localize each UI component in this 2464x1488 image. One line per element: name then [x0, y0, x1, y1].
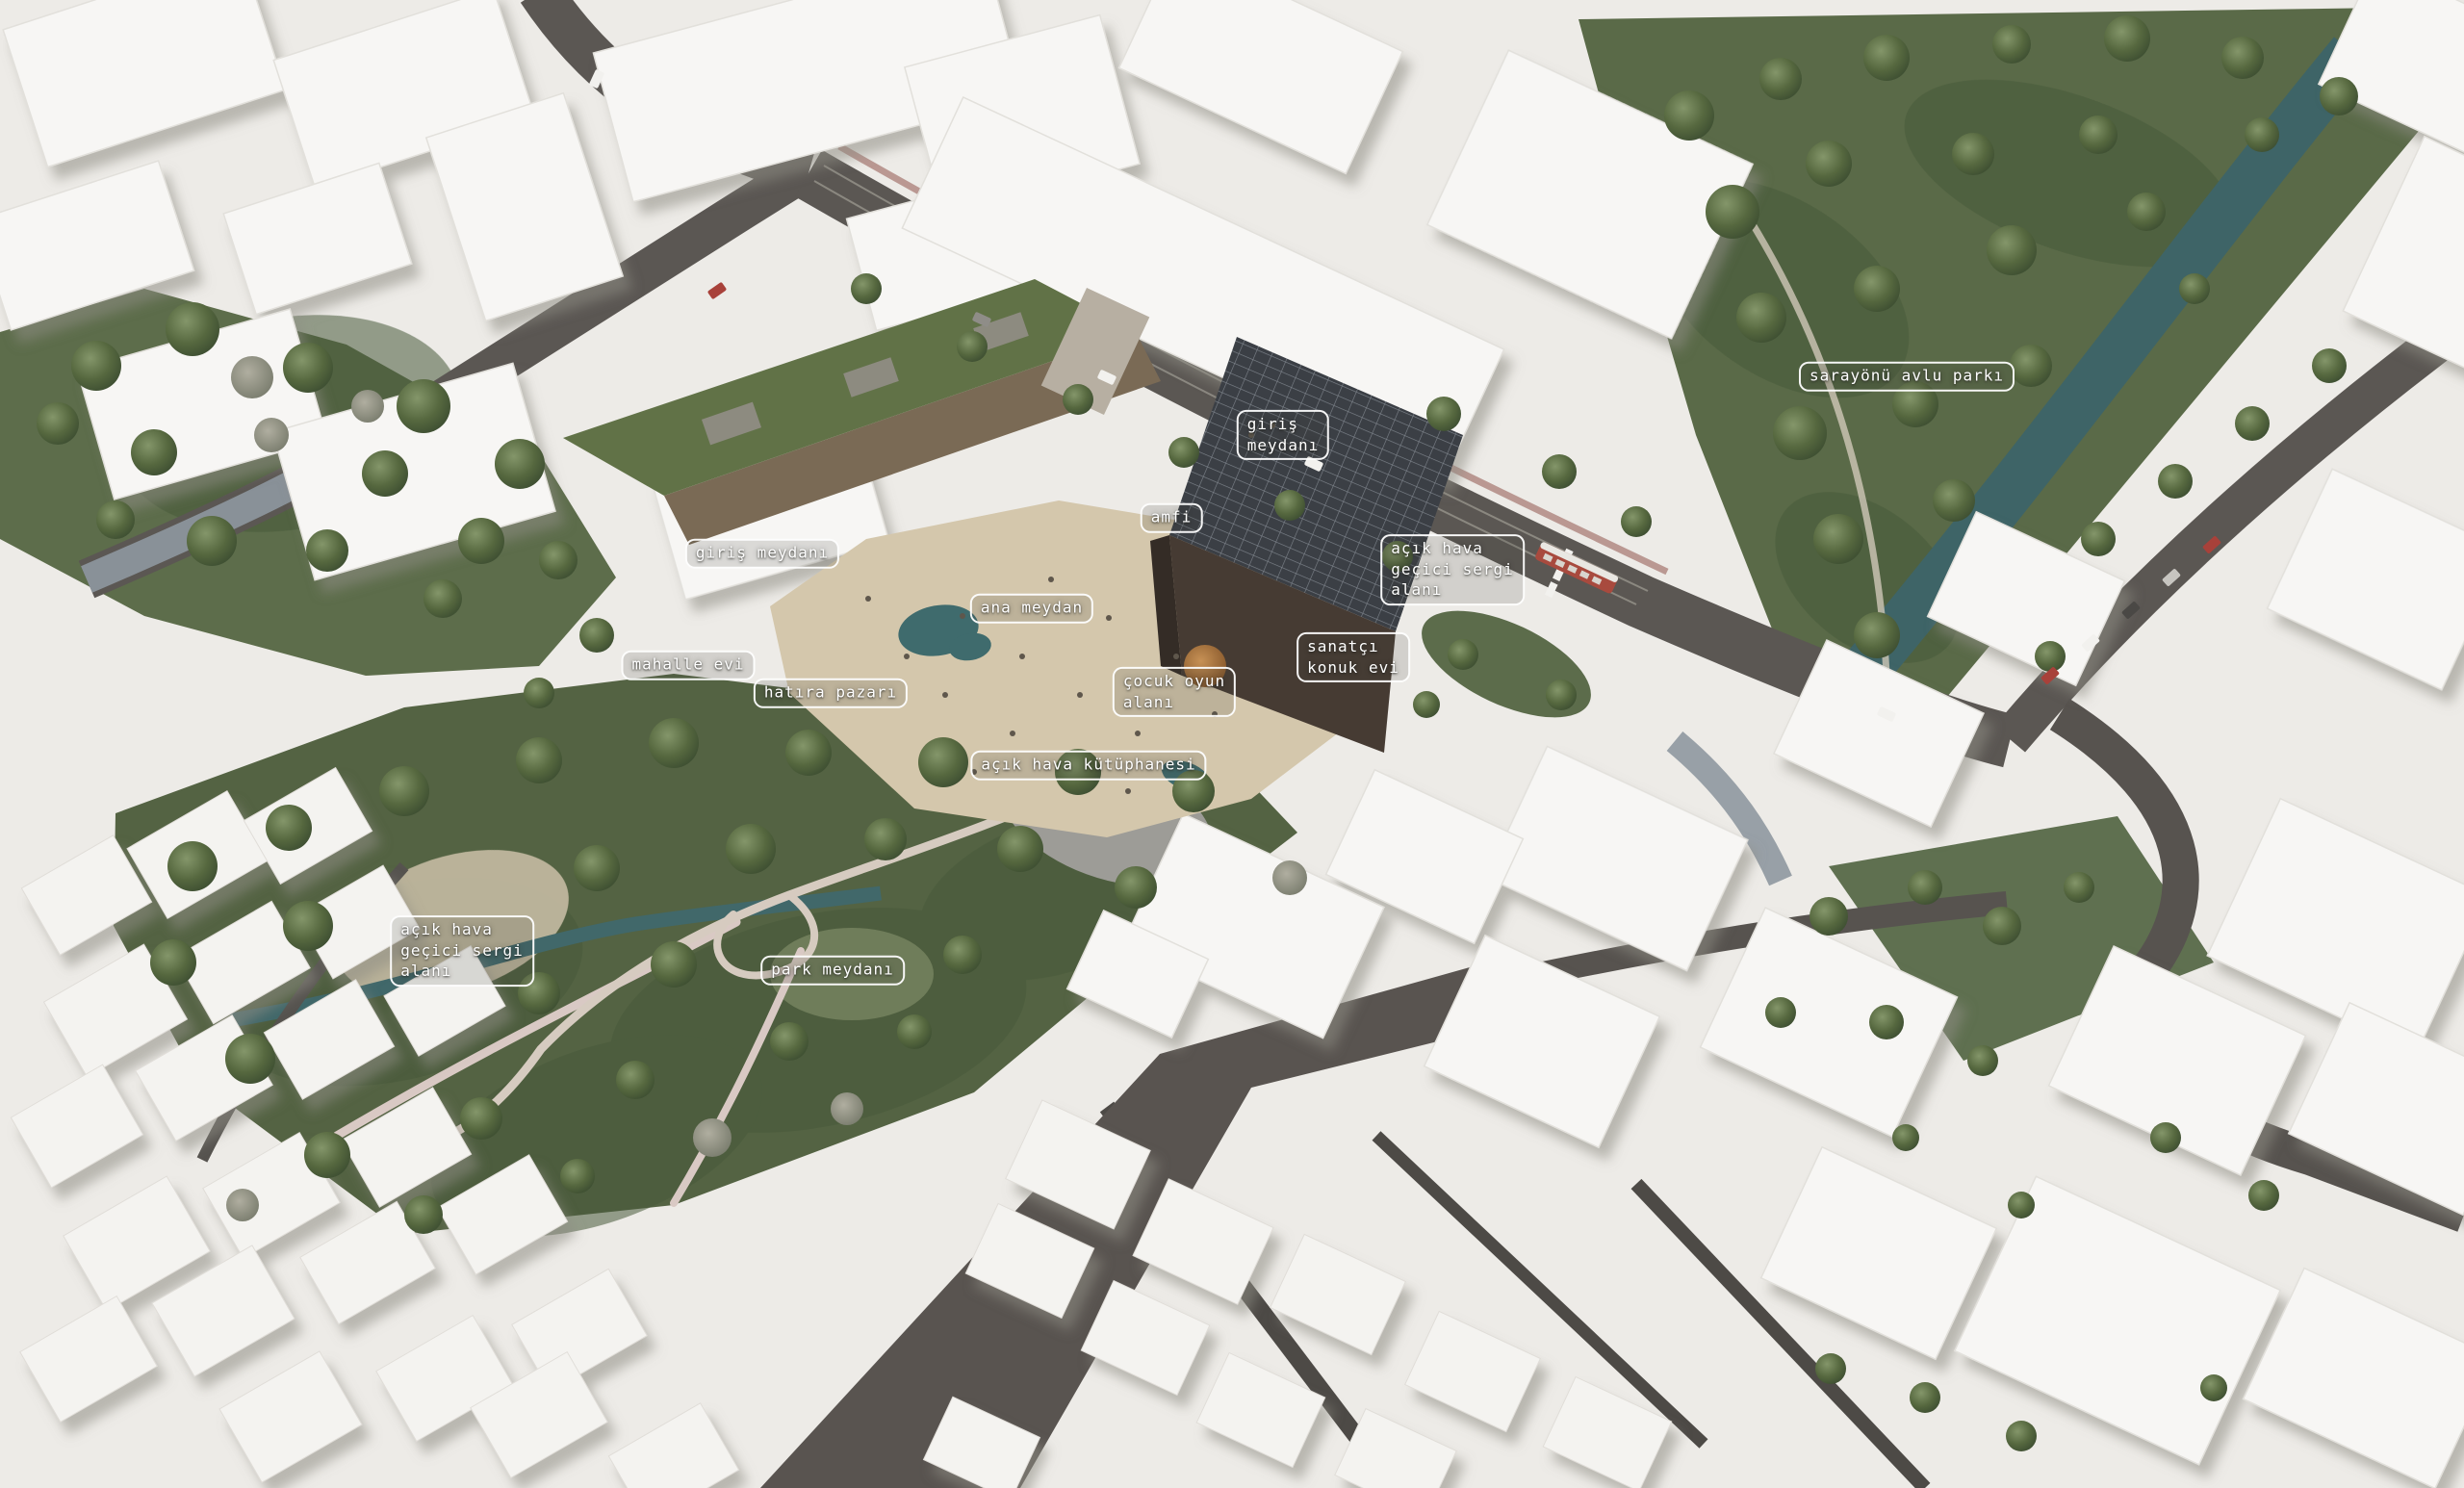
label-ana-meydan: ana meydan: [970, 594, 1093, 624]
label-hatira-pazari: hatıra pazarı: [754, 679, 908, 708]
masterplan-render: sarayönü avlu parkıgiriş meydanıamfiaçık…: [0, 0, 2464, 1488]
label-park-meydani: park meydanı: [760, 956, 905, 986]
label-mahalle-evi: mahalle evi: [622, 651, 756, 680]
label-acik-hava-sergi-bati: açık hava geçici sergi alanı: [390, 915, 534, 987]
label-giris-meydani-bati: giriş meydanı: [685, 539, 839, 569]
label-amfi: amfi: [1141, 503, 1203, 533]
label-sarayonu-avlu-parki: sarayönü avlu parkı: [1799, 362, 2015, 392]
label-cocuk-oyun-alani: çocuk oyun alanı: [1113, 667, 1236, 717]
label-acik-hava-sergi-dogu: açık hava geçici sergi alanı: [1380, 534, 1525, 605]
label-acik-hava-kutuphanesi: açık hava kütüphanesi: [970, 751, 1206, 781]
label-sanatci-konuk-evi: sanatçı konuk evi: [1296, 632, 1410, 682]
label-giris-meydani-tram: giriş meydanı: [1237, 410, 1329, 460]
bare-tree-south: [1272, 860, 1307, 895]
render-canvas: [0, 0, 2464, 1488]
